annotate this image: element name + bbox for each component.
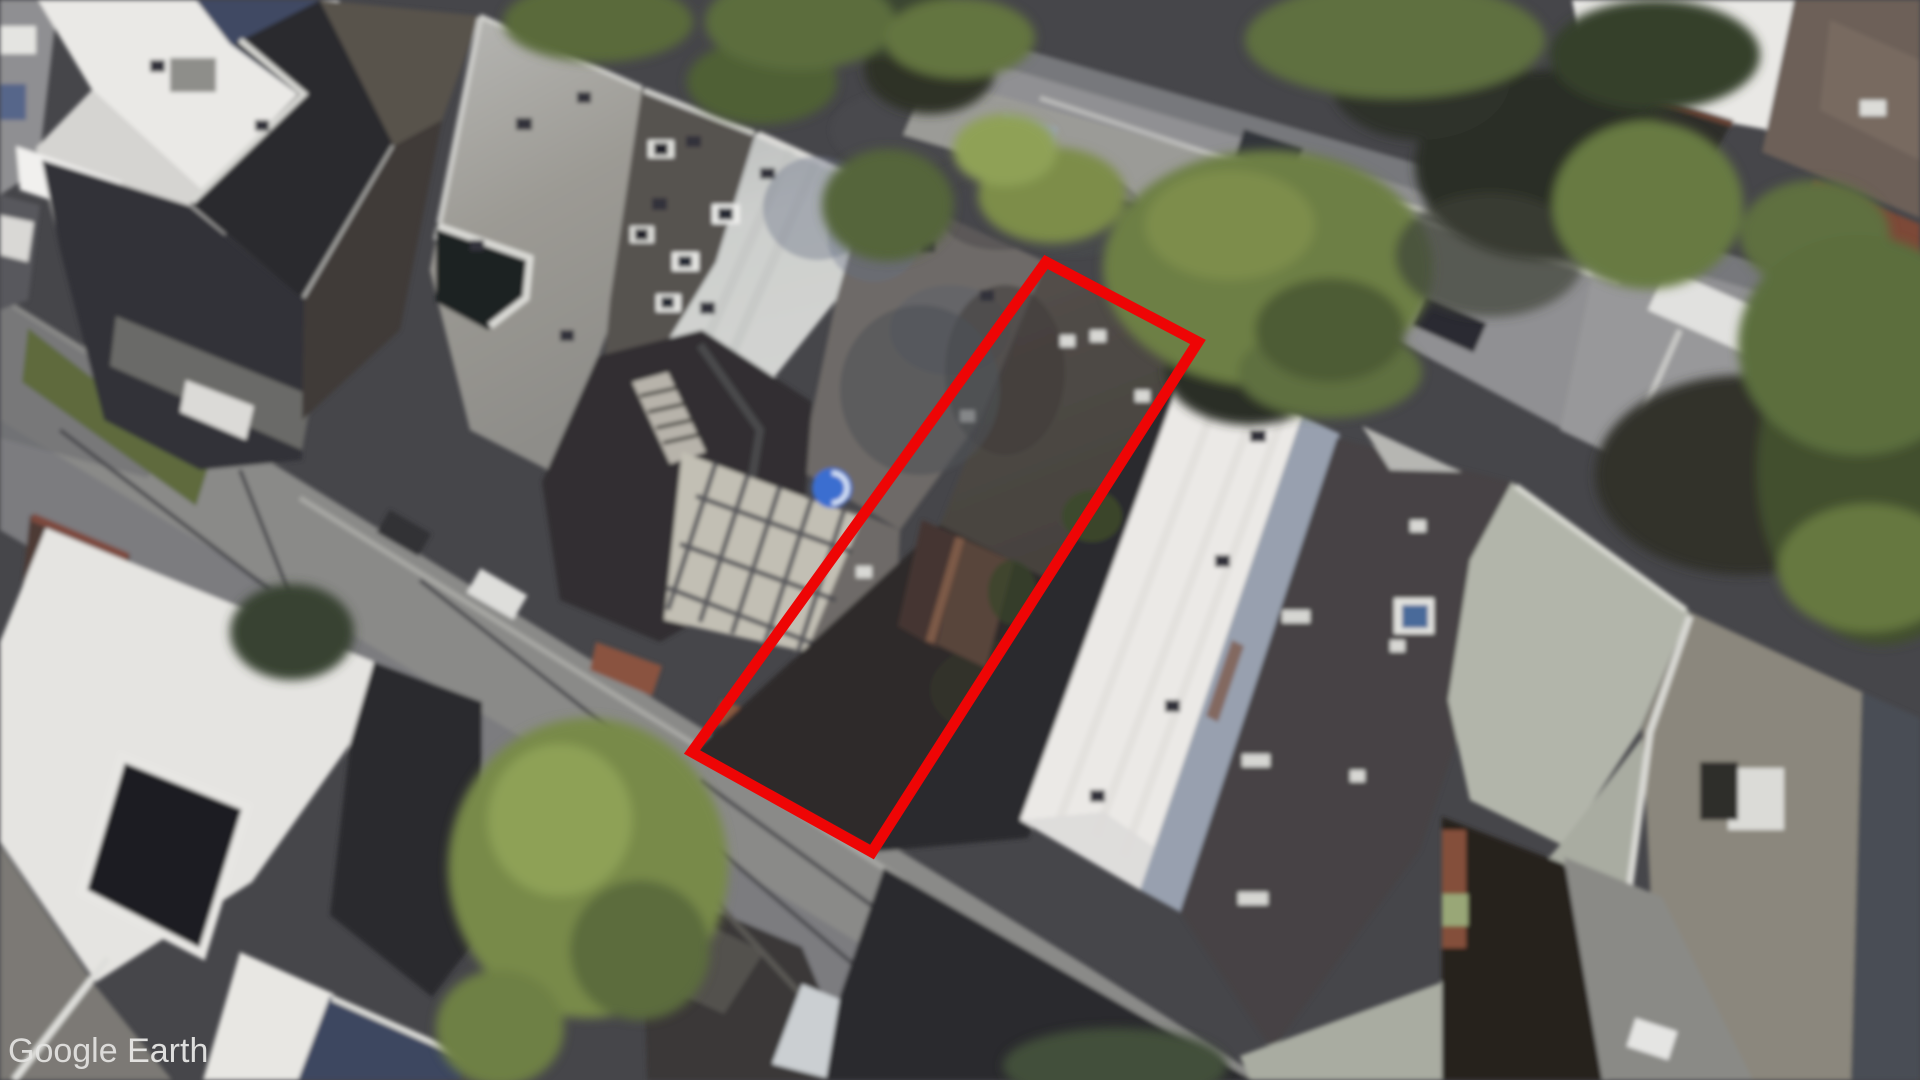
svg-text:Google Earth: Google Earth bbox=[8, 1032, 208, 1070]
